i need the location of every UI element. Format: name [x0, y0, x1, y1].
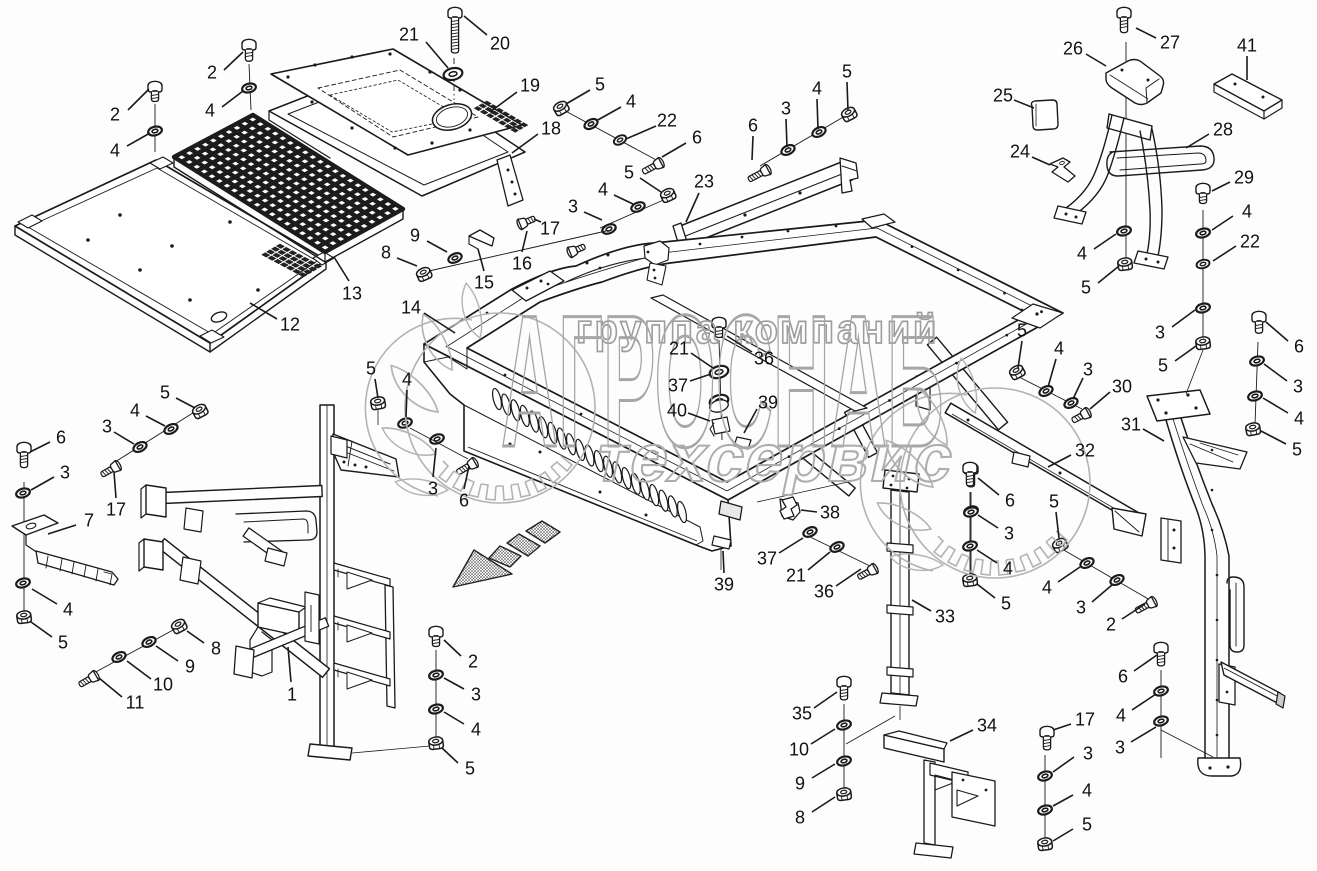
- svg-text:9: 9: [795, 774, 805, 794]
- svg-text:39: 39: [758, 393, 778, 413]
- svg-text:4: 4: [1294, 409, 1304, 429]
- svg-text:9: 9: [410, 226, 420, 246]
- svg-text:23: 23: [694, 172, 714, 192]
- svg-text:16: 16: [512, 254, 532, 274]
- svg-text:7: 7: [84, 511, 94, 531]
- svg-text:3: 3: [781, 99, 791, 119]
- svg-text:техсервис: техсервис: [589, 422, 963, 496]
- svg-text:12: 12: [280, 315, 300, 335]
- svg-text:19: 19: [520, 76, 540, 96]
- svg-text:4: 4: [130, 401, 140, 421]
- svg-text:5: 5: [1082, 815, 1092, 835]
- svg-text:22: 22: [1240, 232, 1260, 252]
- svg-text:3: 3: [60, 463, 70, 483]
- svg-text:18: 18: [541, 119, 561, 139]
- svg-text:21: 21: [669, 339, 689, 359]
- svg-text:4: 4: [1042, 578, 1052, 598]
- svg-text:4: 4: [1082, 781, 1092, 801]
- svg-text:5: 5: [624, 163, 634, 183]
- svg-text:29: 29: [1234, 168, 1254, 188]
- svg-text:8: 8: [795, 808, 805, 828]
- svg-text:11: 11: [126, 693, 145, 713]
- svg-text:3: 3: [471, 685, 481, 705]
- svg-text:31: 31: [1121, 415, 1141, 435]
- svg-text:17: 17: [106, 500, 126, 520]
- svg-text:6: 6: [748, 116, 758, 136]
- svg-text:17: 17: [1075, 710, 1095, 730]
- svg-text:21: 21: [786, 566, 806, 586]
- svg-text:5: 5: [1001, 594, 1011, 614]
- svg-text:3: 3: [1155, 323, 1165, 343]
- svg-text:8: 8: [381, 243, 391, 263]
- svg-text:10: 10: [789, 740, 809, 760]
- svg-text:4: 4: [1242, 202, 1252, 222]
- svg-text:2: 2: [468, 652, 478, 672]
- svg-text:3: 3: [1004, 524, 1014, 544]
- svg-text:38: 38: [820, 503, 840, 523]
- svg-text:5: 5: [1081, 278, 1091, 298]
- svg-text:4: 4: [402, 370, 412, 390]
- svg-text:15: 15: [474, 273, 494, 293]
- svg-text:4: 4: [1054, 339, 1064, 359]
- svg-text:4: 4: [1003, 559, 1013, 579]
- svg-text:5: 5: [465, 759, 475, 779]
- svg-text:3: 3: [1083, 360, 1093, 380]
- svg-text:5: 5: [160, 383, 170, 403]
- svg-text:35: 35: [792, 704, 812, 724]
- svg-text:4: 4: [63, 600, 73, 620]
- svg-text:28: 28: [1213, 120, 1233, 140]
- svg-text:2: 2: [207, 63, 217, 83]
- svg-text:14: 14: [401, 298, 421, 318]
- svg-text:41: 41: [1237, 36, 1257, 56]
- svg-text:10: 10: [153, 675, 173, 695]
- svg-text:40: 40: [667, 401, 687, 421]
- svg-text:27: 27: [1160, 33, 1180, 53]
- svg-text:30: 30: [1112, 377, 1132, 397]
- svg-text:4: 4: [110, 141, 120, 161]
- svg-text:4: 4: [1077, 244, 1087, 264]
- svg-text:2: 2: [110, 105, 120, 125]
- svg-text:4: 4: [812, 79, 822, 99]
- svg-text:6: 6: [1294, 337, 1304, 357]
- svg-text:4: 4: [205, 101, 215, 121]
- svg-text:36: 36: [814, 582, 834, 602]
- svg-text:26: 26: [1063, 39, 1083, 59]
- svg-text:5: 5: [1158, 356, 1168, 376]
- svg-text:3: 3: [568, 197, 578, 217]
- svg-text:3: 3: [102, 417, 112, 437]
- svg-text:22: 22: [657, 111, 677, 131]
- svg-text:37: 37: [757, 549, 777, 569]
- svg-text:5: 5: [1292, 440, 1302, 460]
- svg-text:6: 6: [56, 428, 66, 448]
- svg-text:3: 3: [1083, 744, 1093, 764]
- svg-text:6: 6: [692, 128, 702, 148]
- svg-text:6: 6: [459, 491, 469, 511]
- svg-text:5: 5: [58, 633, 68, 653]
- svg-text:3: 3: [1293, 377, 1303, 397]
- svg-text:36: 36: [754, 349, 774, 369]
- svg-text:3: 3: [428, 479, 438, 499]
- svg-text:24: 24: [1010, 142, 1030, 162]
- svg-text:5: 5: [595, 75, 605, 95]
- svg-text:8: 8: [211, 639, 221, 659]
- svg-text:1: 1: [287, 685, 297, 705]
- svg-text:32: 32: [1075, 441, 1095, 461]
- svg-text:33: 33: [935, 607, 955, 627]
- svg-text:25: 25: [993, 86, 1013, 106]
- svg-text:4: 4: [471, 720, 481, 740]
- svg-text:5: 5: [842, 62, 852, 82]
- svg-text:5: 5: [1049, 492, 1059, 512]
- svg-text:20: 20: [490, 34, 510, 54]
- svg-text:4: 4: [626, 92, 636, 112]
- svg-text:5: 5: [366, 359, 376, 379]
- svg-text:13: 13: [342, 284, 362, 304]
- svg-text:6: 6: [1005, 491, 1015, 511]
- svg-text:39: 39: [714, 575, 734, 595]
- svg-text:21: 21: [399, 25, 419, 45]
- svg-text:4: 4: [1116, 706, 1126, 726]
- svg-text:37: 37: [668, 376, 688, 396]
- svg-text:6: 6: [1118, 667, 1128, 687]
- svg-text:17: 17: [540, 219, 560, 239]
- svg-text:3: 3: [1115, 738, 1125, 758]
- svg-text:2: 2: [1106, 615, 1116, 635]
- svg-text:9: 9: [185, 657, 195, 677]
- svg-text:3: 3: [1076, 598, 1086, 618]
- svg-text:4: 4: [598, 180, 608, 200]
- svg-text:34: 34: [977, 716, 997, 736]
- svg-text:5: 5: [1017, 321, 1027, 341]
